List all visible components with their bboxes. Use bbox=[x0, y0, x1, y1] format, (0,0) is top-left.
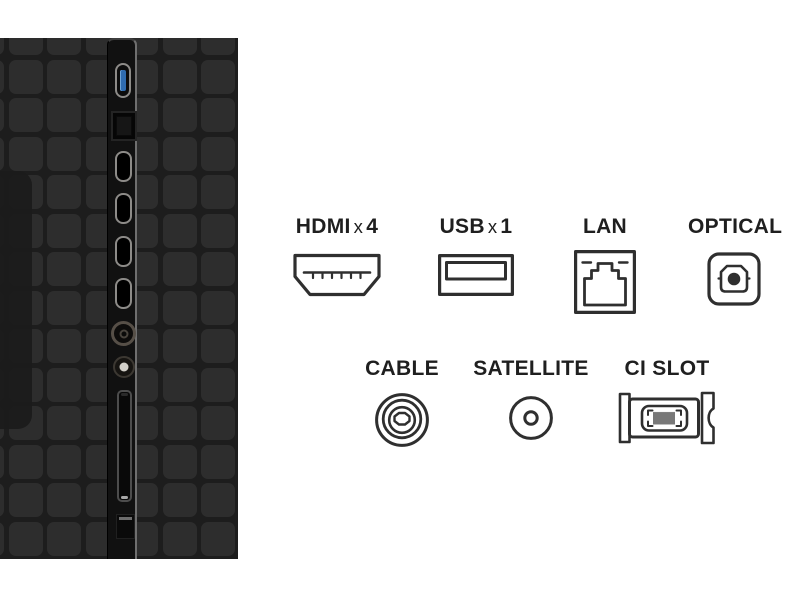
panel-tile bbox=[201, 175, 235, 209]
lan-label: LAN bbox=[561, 216, 649, 238]
hdmi-label-name: HDMI bbox=[296, 215, 351, 238]
panel-tile bbox=[0, 483, 4, 517]
panel-tile bbox=[47, 214, 81, 248]
usb-icon bbox=[438, 254, 514, 296]
hdmi-label-count: 4 bbox=[366, 215, 378, 238]
ci-slot-bottom-highlight bbox=[121, 496, 128, 499]
panel-tile bbox=[0, 445, 4, 479]
legend-usb: USBx1 bbox=[420, 216, 532, 296]
satellite-port-pin bbox=[120, 363, 129, 372]
panel-tile bbox=[47, 329, 81, 363]
legend-hdmi: HDMIx4 bbox=[278, 216, 396, 297]
lan-port-inner bbox=[116, 116, 132, 136]
lan-icon bbox=[574, 250, 636, 314]
panel-tile bbox=[0, 98, 4, 132]
legend-satellite: SATELLITE bbox=[468, 358, 594, 441]
panel-tile bbox=[47, 98, 81, 132]
panel-tile bbox=[163, 175, 197, 209]
panel-tile bbox=[163, 60, 197, 94]
panel-tile bbox=[9, 522, 43, 556]
ci-slot-port bbox=[117, 390, 132, 502]
optical-icon bbox=[707, 252, 761, 306]
legend-ci-slot: CI SLOT bbox=[614, 358, 720, 447]
panel-tile bbox=[201, 368, 235, 402]
hdmi-port-2 bbox=[115, 193, 132, 224]
satellite-port bbox=[113, 356, 135, 378]
cable-icon bbox=[373, 391, 431, 449]
panel-tile bbox=[201, 329, 235, 363]
hdmi-port-3 bbox=[115, 236, 132, 267]
usb-label-x: x bbox=[488, 216, 498, 237]
panel-tile bbox=[163, 445, 197, 479]
panel-tile bbox=[47, 291, 81, 325]
panel-tile bbox=[47, 137, 81, 171]
panel-tile bbox=[201, 252, 235, 286]
usb-label-count: 1 bbox=[500, 215, 512, 238]
panel-tile bbox=[9, 483, 43, 517]
panel-tile bbox=[9, 60, 43, 94]
panel-tile bbox=[201, 483, 235, 517]
ci-slot-label: CI SLOT bbox=[614, 358, 720, 380]
legend-lan: LAN bbox=[561, 216, 649, 314]
panel-tile bbox=[47, 38, 81, 55]
panel-tile bbox=[47, 368, 81, 402]
panel-tile bbox=[47, 483, 81, 517]
panel-tile bbox=[163, 137, 197, 171]
panel-tile bbox=[201, 291, 235, 325]
panel-tile bbox=[0, 522, 4, 556]
panel-tile bbox=[9, 137, 43, 171]
panel-tile bbox=[201, 445, 235, 479]
panel-tile bbox=[201, 137, 235, 171]
legend-cable: CABLE bbox=[354, 358, 450, 449]
panel-recess bbox=[0, 171, 32, 429]
usb-label-name: USB bbox=[440, 215, 485, 238]
panel-tile bbox=[201, 60, 235, 94]
panel-tile bbox=[0, 60, 4, 94]
cable-port-inner bbox=[119, 329, 128, 338]
panel-tile bbox=[163, 368, 197, 402]
panel-tile bbox=[9, 98, 43, 132]
usb-label: USBx1 bbox=[420, 216, 532, 238]
panel-tile bbox=[201, 522, 235, 556]
panel-tile bbox=[201, 38, 235, 55]
cable-label: CABLE bbox=[354, 358, 450, 380]
hdmi-label: HDMIx4 bbox=[278, 216, 396, 238]
panel-tile bbox=[47, 445, 81, 479]
hdmi-port-1 bbox=[115, 151, 132, 182]
panel-tile bbox=[47, 175, 81, 209]
cable-port bbox=[111, 321, 136, 346]
panel-tile bbox=[201, 406, 235, 440]
panel-tile bbox=[163, 406, 197, 440]
ci-slot-top-highlight bbox=[121, 393, 128, 396]
panel-tile bbox=[47, 252, 81, 286]
optical-label: OPTICAL bbox=[688, 216, 780, 238]
panel-tile bbox=[163, 98, 197, 132]
panel-tile bbox=[47, 60, 81, 94]
panel-tile bbox=[201, 214, 235, 248]
ci-slot-icon bbox=[617, 389, 717, 447]
panel-tile bbox=[47, 406, 81, 440]
panel-tile bbox=[9, 38, 43, 55]
hdmi-port-4 bbox=[115, 278, 132, 309]
tv-rear-panel bbox=[0, 38, 238, 559]
panel-tile bbox=[0, 137, 4, 171]
panel-tile bbox=[163, 329, 197, 363]
panel-tile bbox=[163, 291, 197, 325]
panel-tile bbox=[163, 214, 197, 248]
lan-port bbox=[111, 111, 137, 141]
panel-tile bbox=[47, 522, 81, 556]
hdmi-icon bbox=[291, 253, 383, 297]
usb-port bbox=[115, 63, 131, 98]
optical-port-highlight bbox=[119, 517, 132, 520]
optical-port bbox=[116, 514, 135, 539]
panel-tile bbox=[9, 445, 43, 479]
panel-tile bbox=[0, 38, 4, 55]
panel-tile bbox=[163, 522, 197, 556]
panel-tile bbox=[163, 483, 197, 517]
legend-optical: OPTICAL bbox=[688, 216, 780, 306]
satellite-icon bbox=[508, 395, 554, 441]
hdmi-label-x: x bbox=[354, 216, 364, 237]
satellite-label: SATELLITE bbox=[468, 358, 594, 380]
tv-connections-figure: HDMIx4 USBx1 LAN OPTICAL bbox=[0, 0, 800, 600]
panel-tile bbox=[163, 38, 197, 55]
panel-tile bbox=[201, 98, 235, 132]
usb-port-tongue bbox=[120, 70, 126, 91]
panel-tile bbox=[163, 252, 197, 286]
